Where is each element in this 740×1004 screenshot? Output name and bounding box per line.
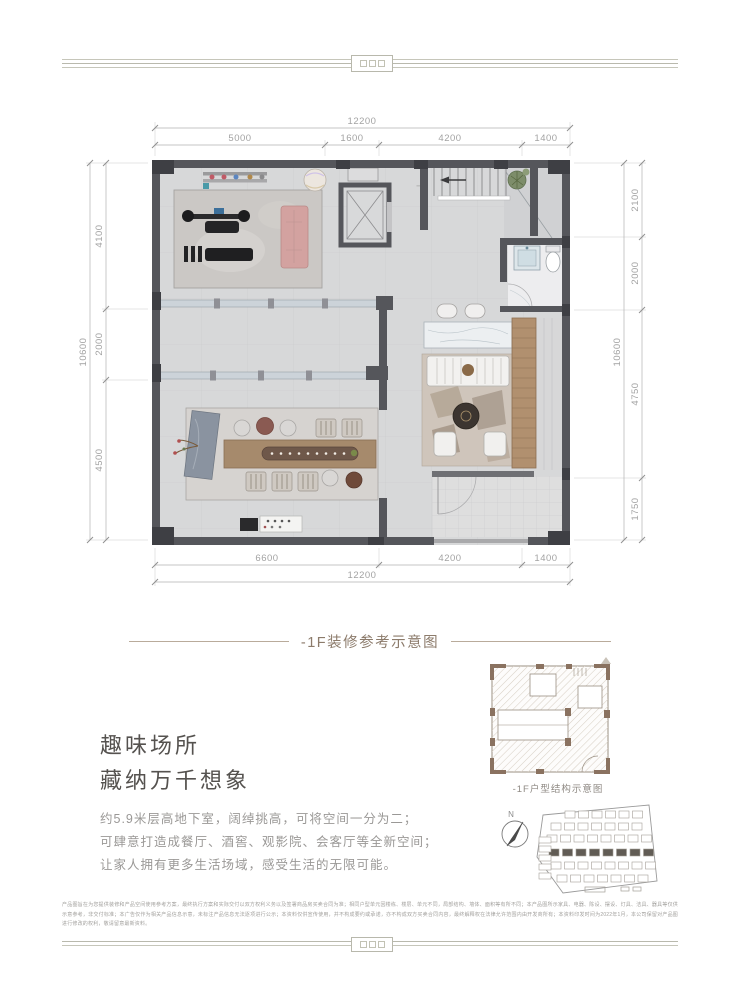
north-tick: [601, 657, 611, 664]
glass-partition: [160, 372, 372, 379]
plan-caption: -1F装修参考示意图: [301, 631, 439, 652]
stool: [257, 418, 274, 435]
brand-emblem: [351, 937, 393, 952]
structure-diagram: [478, 652, 638, 787]
stool: [322, 470, 338, 486]
headline-line1: 趣味场所: [100, 735, 200, 757]
brand-emblem: [351, 55, 393, 72]
dim-bottom-seg: 6600: [255, 553, 278, 564]
lounge-area: [422, 304, 536, 468]
caption-rule-right: [451, 641, 611, 642]
dim-top-seg: 1600: [340, 133, 363, 144]
dim-right-seg: 1750: [630, 497, 641, 520]
armchair: [484, 432, 506, 456]
dim-left-seg: 2000: [94, 332, 105, 355]
striped-chair: [246, 472, 318, 491]
body-line: 约5.9米层高地下室，阔绰挑高，可将空间一分为二；: [100, 808, 438, 831]
sofa: [427, 356, 509, 386]
stool: [280, 420, 296, 436]
north-label: N: [508, 810, 514, 819]
disclaimer-text: 产品图旨在为您提供装修和产品空间使用参考方案，最终执行方案和实际交付以双方权利义…: [62, 901, 678, 930]
dim-bottom-seg: 4200: [438, 553, 461, 564]
marble-counter: [424, 322, 512, 348]
dim-right-total: 10600: [612, 338, 623, 367]
dim-bottom-total: 12200: [348, 570, 377, 581]
brochure-page: 上: [0, 0, 740, 1004]
coffee-table: [453, 403, 479, 429]
wine-cabinet: [512, 318, 536, 468]
dim-right-seg: 2100: [630, 188, 641, 211]
armchair: [434, 432, 456, 456]
floor-plan: 上: [60, 100, 680, 600]
stool: [234, 420, 250, 436]
site-buildings: [539, 811, 656, 882]
body-line: 可肆意打造成餐厅、酒窖、观影院、会客厅等全新空间；: [100, 831, 438, 854]
dim-right-seg: 4750: [630, 382, 641, 405]
dim-left-total: 10600: [78, 338, 89, 367]
dim-right-seg: 2000: [630, 261, 641, 284]
stair-handrail: [438, 196, 510, 200]
body-copy: 约5.9米层高地下室，阔绰挑高，可将空间一分为二； 可肆意打造成餐厅、酒窖、观影…: [100, 808, 438, 877]
body-line: 让家人拥有更多生活场域，感受生活的无限可能。: [100, 854, 438, 877]
compass-icon: N: [502, 810, 528, 847]
bar-stool: [437, 304, 457, 318]
dim-top-total: 12200: [348, 116, 377, 127]
dim-bottom-seg: 1400: [534, 553, 557, 564]
site-plan: N: [435, 795, 670, 907]
dim-left-seg: 4100: [94, 224, 105, 247]
bar-stool: [465, 304, 485, 318]
media-console: [240, 516, 302, 532]
dim-top-seg: 5000: [228, 133, 251, 144]
dim-top-seg: 4200: [438, 133, 461, 144]
exercise-ball-icon: [304, 169, 326, 191]
toilet-icon: [546, 246, 560, 272]
plan-caption-row: -1F装修参考示意图: [0, 631, 740, 652]
lightwell-floor: [536, 318, 562, 470]
weight-bench-icon: [184, 246, 253, 262]
structure-caption: -1F户型结构示意图: [478, 781, 638, 795]
dim-left-seg: 4500: [94, 448, 105, 471]
caption-rule-left: [129, 641, 289, 642]
headline-line2: 藏纳万千想象: [100, 770, 250, 792]
glass-partition: [160, 300, 390, 307]
stool: [346, 472, 362, 488]
dim-top-seg: 1400: [534, 133, 557, 144]
yoga-mat-icon: [281, 206, 308, 268]
